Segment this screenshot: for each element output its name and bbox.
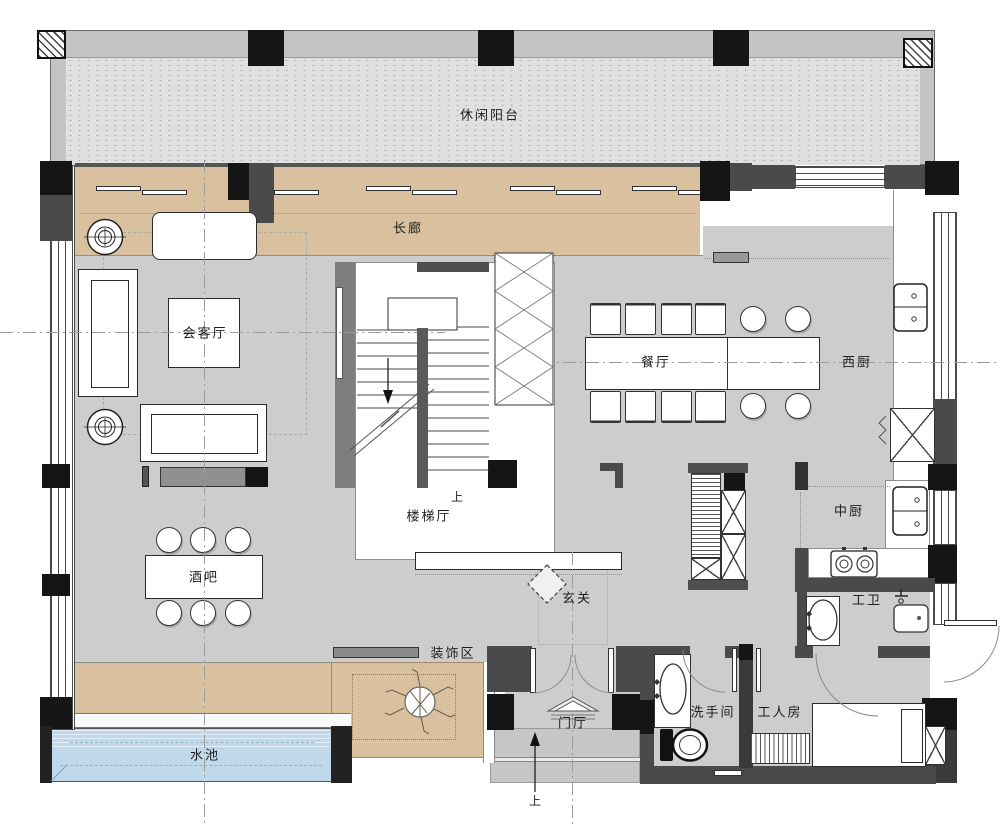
stair-wall	[417, 262, 489, 272]
midkitchen-dotted-v	[800, 492, 801, 548]
column	[228, 163, 249, 200]
wall-segment	[795, 646, 813, 658]
column	[700, 161, 730, 201]
column	[40, 161, 72, 195]
dining-chair	[695, 303, 726, 335]
foyer-wall-left	[487, 646, 532, 692]
bed	[812, 703, 926, 767]
room-label-west-kitchen: 西厨	[842, 356, 872, 369]
room-label-bar: 酒吧	[189, 571, 219, 584]
midkitchen-dotted-h	[808, 486, 890, 487]
sliding-panel	[142, 190, 187, 195]
stair-hall-floor	[355, 262, 555, 560]
door-leaf	[944, 620, 997, 626]
decor-dotted-guide	[352, 674, 456, 740]
entry-console	[415, 552, 622, 570]
dining-stool	[740, 393, 766, 419]
nightstand	[925, 726, 946, 765]
bar-stool	[190, 600, 216, 626]
sliding-panel	[96, 186, 141, 191]
bar-stool	[225, 600, 251, 626]
axis-horizontal-2	[540, 362, 1000, 363]
staffbath-counter	[806, 596, 840, 646]
dining-table	[585, 337, 820, 390]
dining-chair	[625, 391, 656, 423]
dining-stool	[785, 393, 811, 419]
column	[42, 464, 70, 488]
wall-segment	[795, 548, 808, 581]
column	[488, 460, 517, 488]
washroom-counter	[654, 654, 691, 728]
wardrobe-shelf	[721, 534, 746, 580]
sofa-left	[78, 269, 138, 397]
pillow	[901, 709, 923, 763]
window-band-right	[933, 583, 957, 625]
entrance-up-label: 上	[529, 795, 541, 807]
door-leaf	[732, 648, 737, 692]
room-label-foyer: 门厅	[558, 717, 588, 730]
dining-chair	[661, 391, 692, 423]
axis-vertical-1	[204, 160, 205, 825]
foyer-apron	[490, 728, 640, 783]
window-band-top	[795, 166, 885, 188]
sofa-seat	[91, 280, 129, 388]
stair-wall-window	[336, 287, 343, 379]
tv-console-end	[246, 467, 268, 487]
sliding-panel	[510, 186, 555, 191]
wardrobe-shelf	[691, 558, 721, 580]
room-label-staff-room: 工人房	[757, 706, 802, 719]
wall-window-slot	[714, 770, 742, 776]
floor-plan: 休闲阳台 长廊 会客厅 餐厅 西厨 楼梯厅 上 中厨 酒吧 玄关 工卫 装饰区 …	[0, 0, 1000, 825]
wardrobe-frame	[688, 463, 748, 473]
foyer-step-line	[490, 757, 640, 762]
room-label-stair-hall: 楼梯厅	[406, 510, 451, 523]
column	[40, 697, 72, 729]
pool-dash-1	[70, 742, 314, 743]
wall-segment	[730, 163, 752, 191]
wardrobe-shelf	[721, 490, 746, 534]
bar-stool	[225, 527, 251, 553]
dining-chair	[661, 303, 692, 335]
door-leaf	[756, 648, 761, 692]
room-label-gallery: 长廊	[393, 222, 423, 235]
foyer-wall-right	[616, 646, 640, 692]
sliding-panel	[274, 190, 319, 195]
room-label-entry: 玄关	[562, 592, 592, 605]
wall-segment	[933, 400, 957, 464]
foyer-wall-right	[612, 694, 640, 730]
dining-stool	[785, 306, 811, 332]
sliding-panel	[556, 190, 601, 195]
room-label-washroom: 洗手间	[690, 706, 735, 719]
staffroom-cabinet	[750, 733, 810, 764]
bar-stool	[156, 527, 182, 553]
room-label-dining: 餐厅	[641, 356, 671, 369]
wall-segment	[752, 165, 795, 189]
window-band-left	[50, 165, 75, 730]
sliding-panel	[412, 190, 457, 195]
console-dotted-guide	[415, 574, 622, 575]
pool-end-column	[331, 726, 352, 783]
wall-segment	[795, 578, 935, 592]
dining-stool	[740, 306, 766, 332]
sliding-panel	[366, 186, 411, 191]
sliding-panel	[632, 186, 677, 191]
wall-segment	[878, 646, 930, 658]
wall-stub-cap	[739, 644, 753, 660]
wall-segment	[640, 766, 936, 784]
side-entrance-arc	[944, 626, 999, 682]
column	[478, 30, 514, 66]
foyer-wall-left	[487, 694, 514, 730]
pool-coping	[75, 713, 351, 728]
wall-segment	[640, 700, 654, 734]
window-band-right	[933, 490, 957, 545]
corner-column-hatched	[903, 38, 933, 68]
equipment-bar	[713, 252, 749, 263]
tv-console	[160, 467, 246, 487]
room-label-reception: 会客厅	[182, 327, 227, 340]
appliance-shaft	[890, 408, 935, 462]
column	[925, 161, 959, 195]
room-label-staff-bath: 工卫	[852, 594, 882, 607]
pool-dash-2	[60, 765, 322, 766]
dining-chair	[590, 391, 621, 423]
room-label-balcony: 休闲阳台	[460, 109, 520, 122]
dining-chair	[590, 303, 621, 335]
column	[248, 30, 284, 66]
pool-water-lines	[52, 730, 330, 748]
bar-stool	[190, 527, 216, 553]
wardrobe-hanging-rail	[691, 473, 721, 558]
decor-zone-bar	[333, 647, 419, 658]
wall-segment	[75, 163, 700, 165]
wall-corner	[615, 463, 623, 488]
room-label-middle-kitchen: 中厨	[834, 505, 864, 518]
wardrobe-corner	[724, 473, 745, 490]
wardrobe	[688, 463, 748, 590]
pool-end-column	[40, 726, 52, 783]
door-leaf	[608, 648, 614, 693]
corner-column-hatched	[37, 30, 66, 59]
stair-up-label: 上	[451, 491, 463, 503]
wall-segment	[885, 165, 927, 189]
wardrobe-frame	[688, 580, 748, 590]
tv-side-bar	[142, 466, 149, 487]
window-band-right	[933, 212, 957, 400]
wall-segment	[40, 195, 72, 241]
room-label-decor-zone: 装饰区	[430, 647, 475, 660]
column	[713, 30, 749, 66]
dining-table-divider	[727, 338, 728, 389]
room-label-pool: 水池	[190, 749, 220, 762]
dining-chair	[625, 303, 656, 335]
deck-bottom	[75, 663, 331, 713]
dining-chair	[695, 391, 726, 423]
stove-counter	[808, 548, 930, 578]
door-leaf	[530, 648, 536, 693]
column	[928, 464, 957, 490]
bar-stool	[156, 600, 182, 626]
wall-segment	[795, 462, 808, 490]
column	[42, 574, 70, 596]
